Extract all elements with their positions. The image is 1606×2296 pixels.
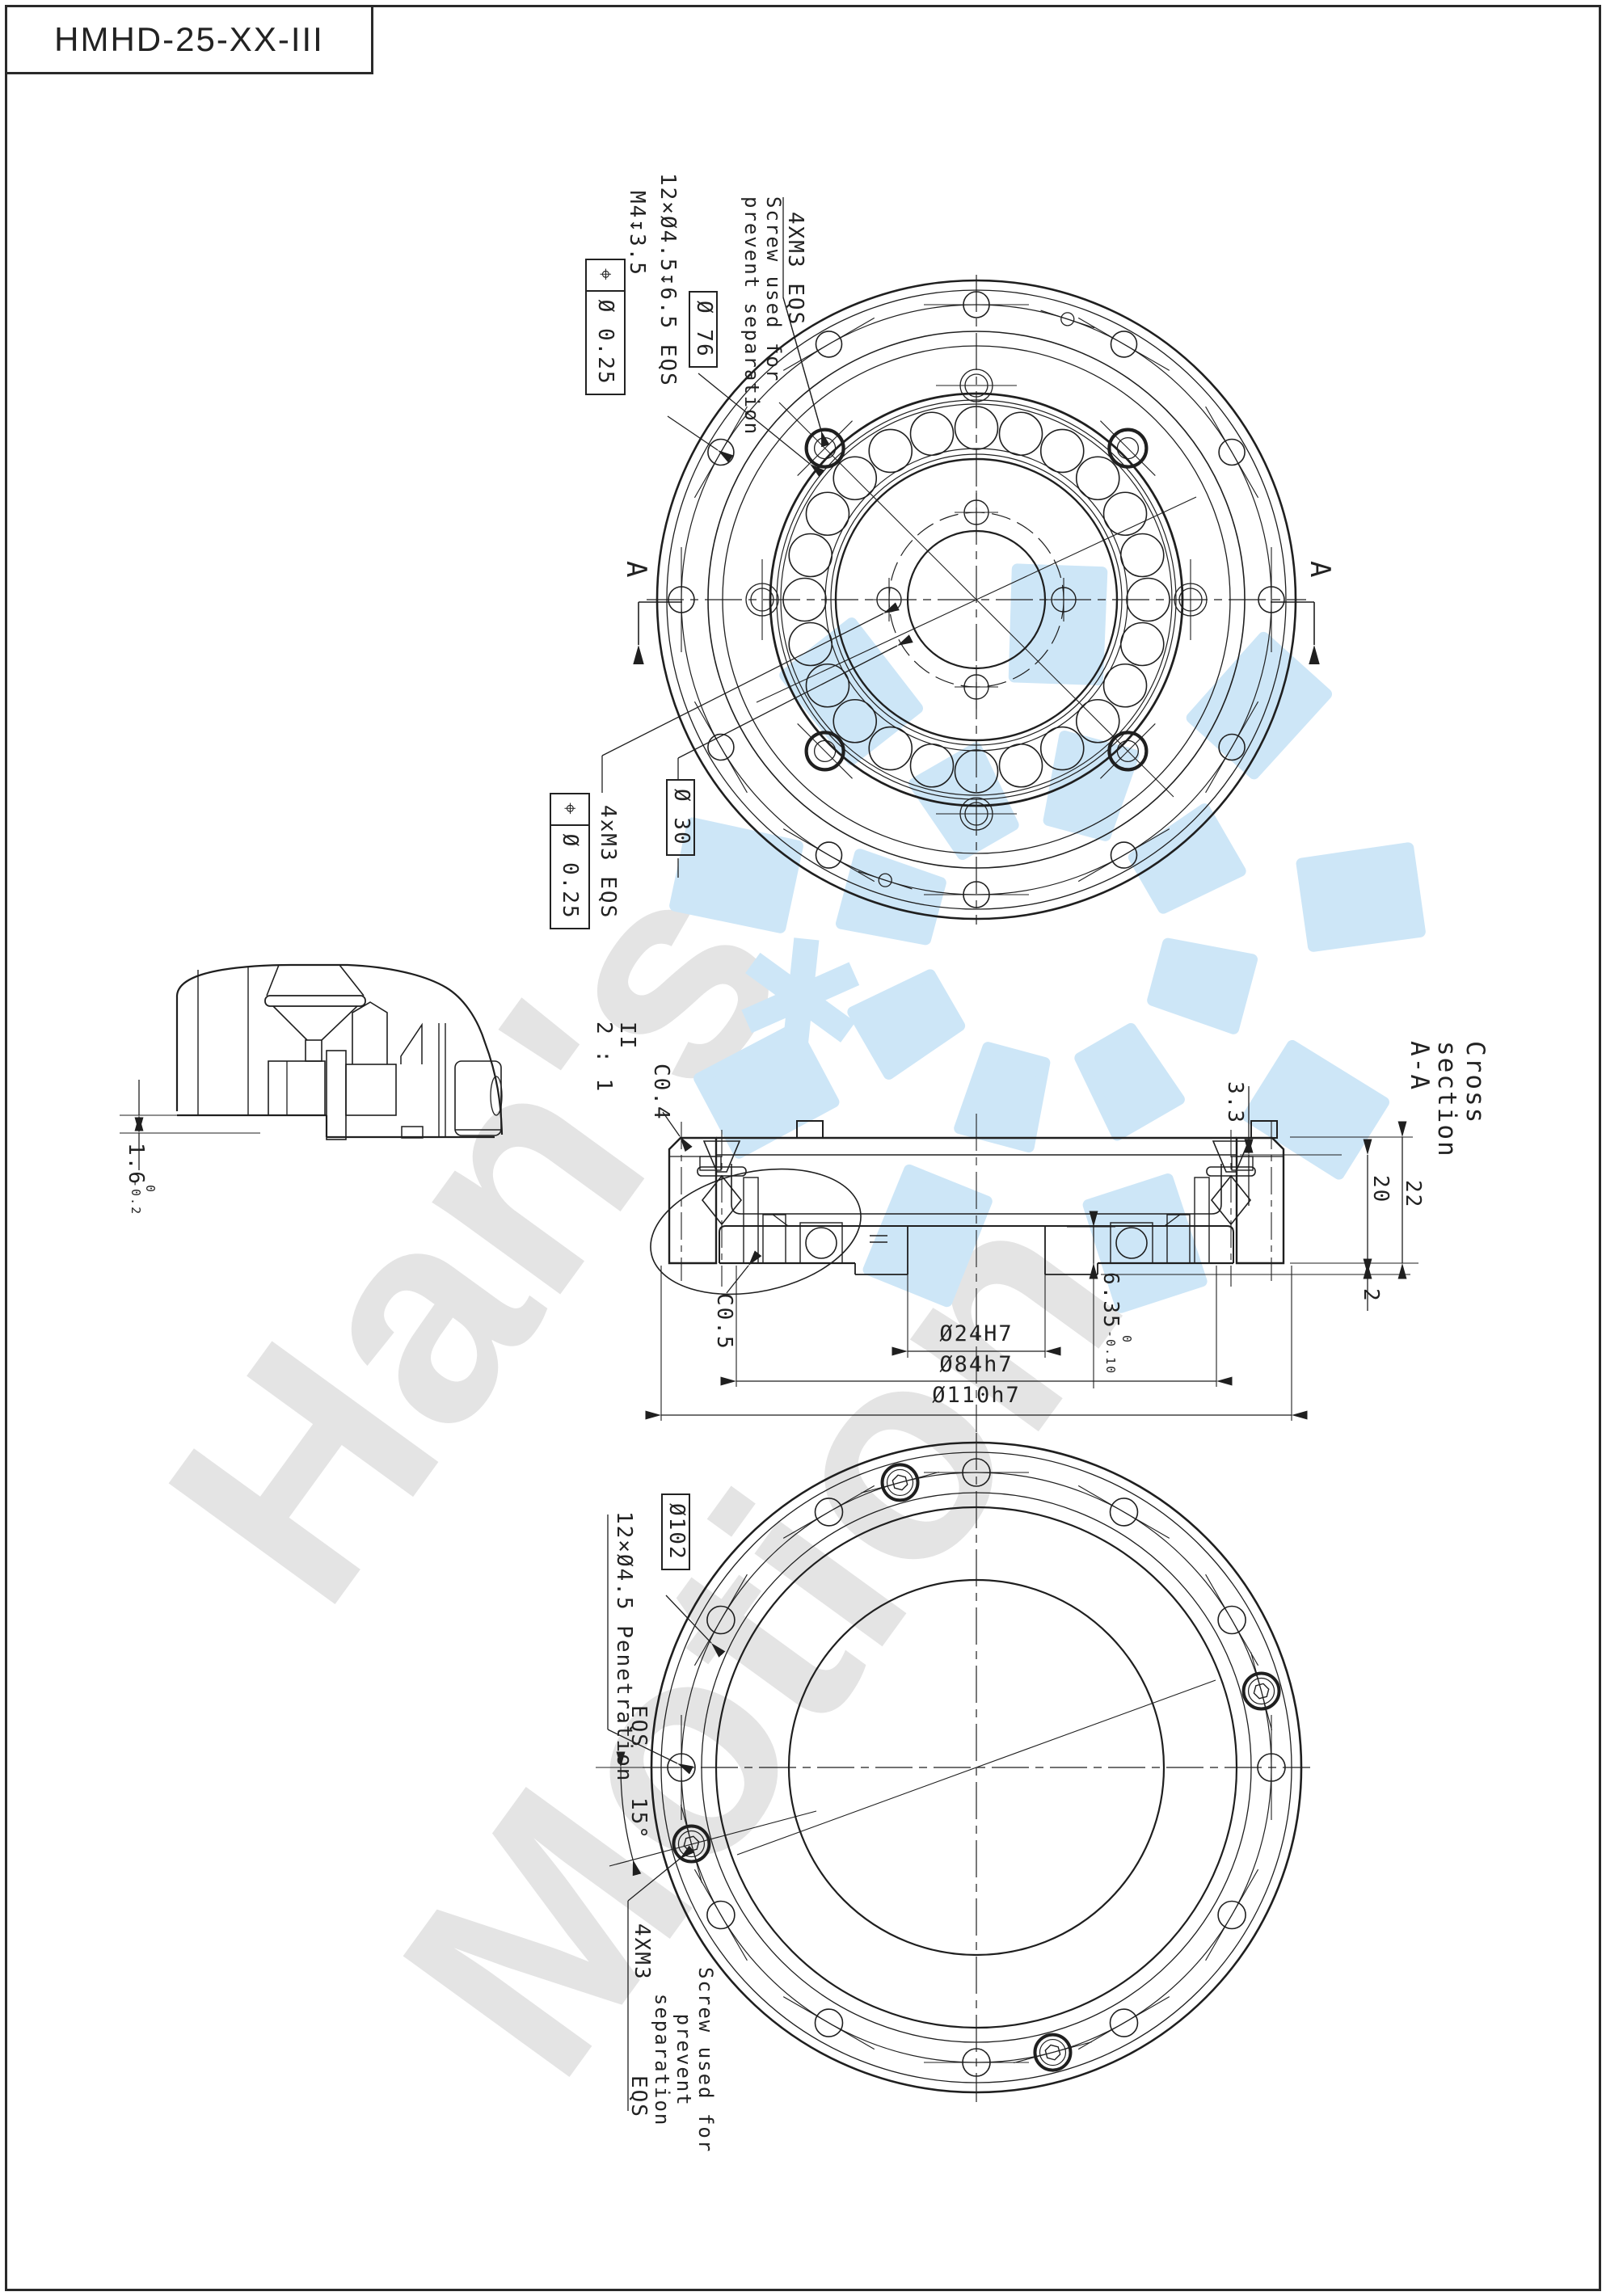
position-symbol: ⌖ <box>587 260 624 290</box>
bv-eqs-label: EQS <box>626 1705 650 1748</box>
section-marker-a-left: A <box>621 561 651 579</box>
bv-dia102-label: Ø102 <box>661 1493 690 1570</box>
cs-dim-22: 22 <box>1401 1180 1424 1208</box>
cs-dim-6-35-tol-upper: 0 <box>1119 1335 1133 1344</box>
position-tolerance-frame-top: ⌖ Ø 0.25 <box>585 259 626 395</box>
tv-4xm3-callout: 4XM3 EQS <box>783 212 807 326</box>
tv-callout-holes: 12×Ø4.5↧6.5 EQS <box>655 173 679 387</box>
tv-dia30-label: Ø 30 <box>666 779 695 856</box>
position-tolerance-value: Ø 0.25 <box>551 824 588 928</box>
tv-callout-thread: M4↧3.5 <box>625 191 648 276</box>
cross-section-title: Cross section A-A <box>1405 1041 1489 1158</box>
tv-4xm3-eqs-label: 4xM3 EQS <box>596 805 619 919</box>
drawing-number: HMHD-25-XX-III <box>54 20 324 59</box>
cs-dim-20: 20 <box>1368 1175 1392 1203</box>
detail-dim-1-6-tol-lower: -0.2 <box>129 1180 142 1215</box>
bv-screw-note: Screw used for prevent separation <box>651 1967 716 2153</box>
bv-angle-15: 15° <box>626 1797 650 1840</box>
cs-chamfer-c05: C0.5 <box>712 1293 736 1350</box>
dimensions-and-leaders <box>120 197 1418 2111</box>
bv-eqs2-label: EQS <box>626 2075 650 2118</box>
tv-dia76-label: Ø 76 <box>689 291 718 368</box>
title-block: HMHD-25-XX-III <box>5 5 373 74</box>
cs-dim-dia110: Ø110h7 <box>932 1384 1021 1408</box>
bv-4xm3-label: 4XM3 <box>630 1923 653 1981</box>
cs-chamfer-c04: C0.4 <box>649 1064 672 1121</box>
cs-dim-6-35: 6.35 <box>1098 1272 1122 1329</box>
position-tolerance-value: Ø 0.25 <box>587 290 624 394</box>
detail-scale-note: II 2 : 1 <box>592 1022 639 1093</box>
cs-dim-3-3: 3.3 <box>1223 1081 1246 1124</box>
position-tolerance-frame-bottom: ⌖ Ø 0.25 <box>550 793 590 929</box>
tv-screw-note: Screw used for prevent separation <box>740 196 784 436</box>
position-symbol: ⌖ <box>551 794 588 824</box>
drawing-canvas: Han's Motion ✱ <box>0 0 1606 2296</box>
cs-dim-2: 2 <box>1359 1288 1382 1303</box>
cs-dim-dia24: Ø24H7 <box>939 1322 1013 1346</box>
detail-dim-1-6-tol-upper: 0 <box>143 1185 157 1194</box>
drawing-sheet: Han's Motion ✱ HMHD-25-XX-III ⌖ Ø 0.25 ⌖… <box>0 0 1606 2296</box>
cs-dim-dia84: Ø84h7 <box>939 1353 1013 1377</box>
section-marker-a-right: A <box>1305 561 1335 579</box>
cs-dim-6-35-tol-lower: -0.10 <box>1103 1330 1117 1375</box>
